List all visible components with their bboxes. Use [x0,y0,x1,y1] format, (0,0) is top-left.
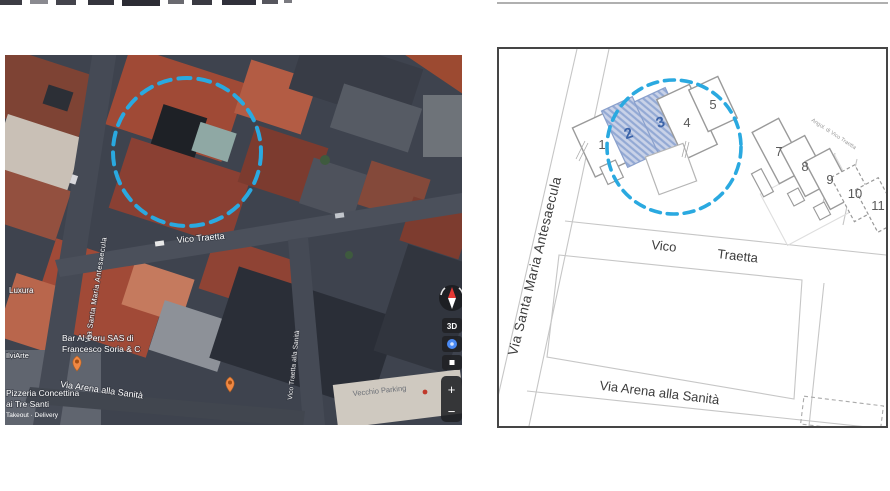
building-number: 11 [871,198,885,213]
poi-bar-line2: Francesco Soria & C [62,344,140,354]
tilt-3d-button[interactable]: 3D [442,318,462,333]
building-number: 10 [848,186,862,201]
building-number: 1 [598,137,605,152]
plan-map-figure: 1 2 3 4 5 7 8 9 10 11 Via [497,47,888,428]
building-number: 4 [683,115,690,130]
plan-map: 1 2 3 4 5 7 8 9 10 11 Via [499,49,886,426]
poi-bar-line1: Bar Al Peru SAS di [62,333,133,343]
poi-ilviarte: IlviArte [6,351,29,360]
satellite-map-figure: Via Santa Maria Antesaecula Vico Traetta… [5,55,462,425]
plan-label-vico: Vico [651,237,678,255]
zoom-control: + − [441,376,462,422]
pin-parking-dot[interactable] [423,390,428,395]
my-location-button[interactable] [442,355,462,370]
my-location-icon [450,360,455,365]
previous-figure-border [497,2,888,4]
satellite-map: Via Santa Maria Antesaecula Vico Traetta… [5,55,462,425]
poi-luxura: Luxura [9,286,34,295]
building-number: 8 [801,159,808,174]
zoom-in-button[interactable]: + [448,382,456,397]
poi-pizzeria-line2: ai Tre Santi [6,399,49,409]
building-number: 9 [826,172,833,187]
building-number: 7 [775,144,782,159]
tilt-3d-label: 3D [447,322,457,331]
figure-page: Via Santa Maria Antesaecula Vico Traetta… [0,0,890,491]
street-view-button[interactable] [442,336,462,352]
poi-pizzeria-sub: Takeout · Delivery [6,412,59,419]
poi-pizzeria-line1: Pizzeria Concettina [6,388,80,398]
street-view-icon-center [450,342,454,346]
building-number: 5 [709,97,716,112]
zoom-out-button[interactable]: − [448,404,456,419]
